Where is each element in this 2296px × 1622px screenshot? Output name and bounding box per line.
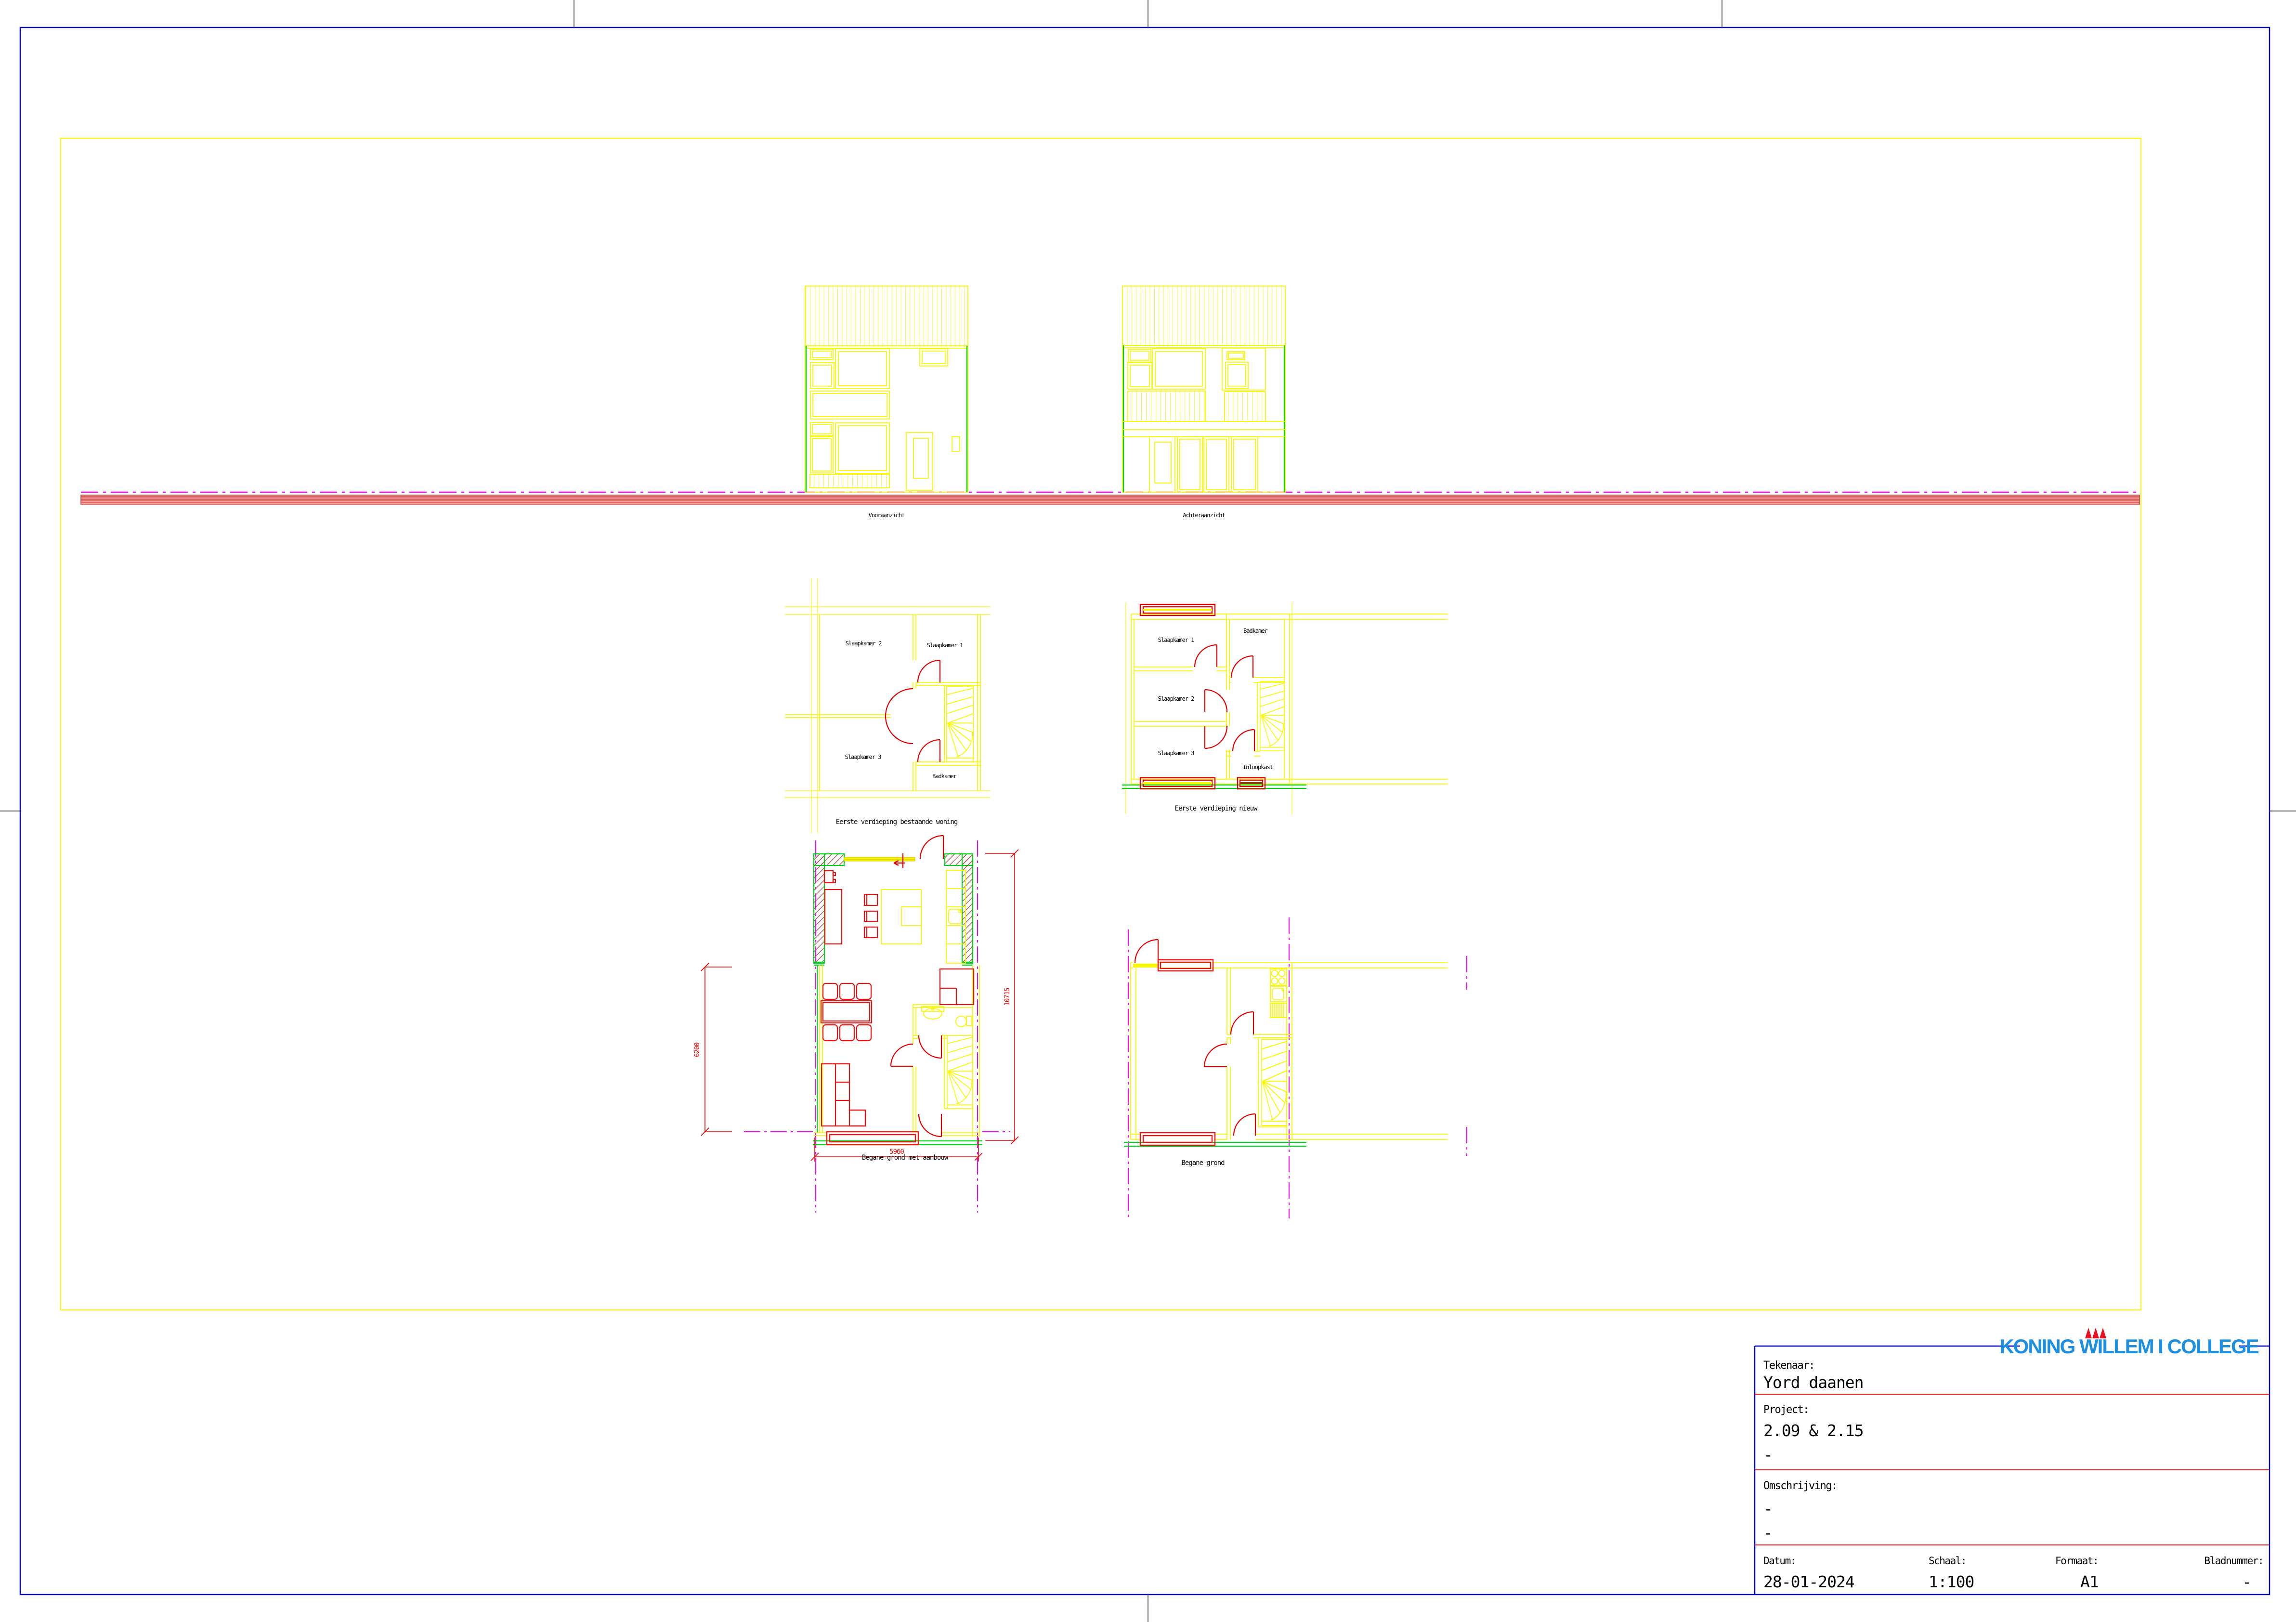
front-door [906,432,933,490]
balustrade-slats [1225,392,1265,421]
plan-first-new [1122,602,1448,814]
rear-elevation-label: Achteraanzicht [1183,512,1225,519]
kitchen [881,870,965,963]
plan-first-existing [785,578,991,833]
roof-hatch [805,286,968,346]
plan-caption: Eerste verdieping nieuw [1175,805,1258,812]
room-label: Slaapkamer 3 [1158,750,1194,757]
tekenaar-value: Yord daanen [1763,1373,1864,1392]
bladnummer-value: - [2242,1572,2251,1591]
stair [1260,681,1284,751]
datum-label: Datum: [1763,1555,1796,1567]
fold-marks [0,0,2296,1622]
door-swings [886,660,940,762]
louvre-slats [810,474,889,488]
stair [1262,1039,1287,1125]
omschrijving-line1: - [1763,1499,1773,1518]
logo: KONING WILLEM I COLLEGE [1999,1328,2258,1358]
rear-ground-glazing [1149,437,1258,492]
plan-ground-extension [701,836,1018,1213]
page-border [0,0,2296,1622]
project-note: - [1763,1445,1773,1464]
formaat-value: A1 [2080,1572,2099,1591]
windows [1140,960,1215,1145]
dimension-depth-total: 10715 [1004,988,1011,1006]
room-label: Slaapkamer 2 [1158,695,1194,702]
room-label: Badkamer [1243,628,1268,634]
room-label: Inloopkast [1243,764,1273,771]
front-elevation [805,286,968,492]
rear-windows [1128,348,1265,421]
formaat-label: Formaat: [2055,1555,2098,1567]
plan-caption: Eerste verdieping bestaande woning [836,818,958,826]
schaal-label: Schaal: [1929,1555,1966,1567]
front-windows [810,349,960,488]
drawing-frame [61,138,2141,1310]
schaal-value: 1:100 [1929,1572,1974,1591]
rear-elevation [1122,286,1285,492]
logo-text: KONING WILLEM I COLLEGE [1999,1335,2258,1358]
title-block: KONING WILLEM I COLLEGE Tekenaar: Yord d… [1755,1328,2270,1595]
omschrijving-label: Omschrijving: [1763,1480,1837,1492]
floor-bands [1122,421,1285,437]
datum-value: 28-01-2024 [1763,1572,1854,1591]
kitchen [1270,969,1287,1018]
ground-line [81,492,2139,504]
door-swings [891,836,943,1137]
balustrade-slats [1128,391,1205,421]
dimension-depth-existing: 6200 [693,1043,701,1057]
stair [947,1035,973,1109]
window [827,1132,918,1145]
plan-caption: Begane grond [1181,1159,1225,1167]
extension-window-band [844,857,915,861]
roof-hatch [1122,286,1285,345]
drawing-sheet: Vooraanzicht Achteraanz [0,0,2296,1622]
room-label: Slaapkamer 1 [1158,637,1194,643]
tekenaar-label: Tekenaar: [1763,1360,1814,1372]
room-label: Slaapkamer 2 [846,640,882,647]
plan-ground [1124,917,1467,1218]
room-label: Slaapkamer 1 [927,642,963,649]
plan-caption: Begane grond met aanbouw [862,1154,949,1162]
title-block-dividers [1755,1394,2270,1545]
project-label: Project: [1763,1404,1809,1416]
project-value: 2.09 & 2.15 [1763,1421,1864,1440]
wc-fixtures [922,1007,972,1027]
room-label: Slaapkamer 3 [845,754,881,760]
stair [947,686,973,762]
front-elevation-label: Vooraanzicht [869,512,905,519]
omschrijving-line2: - [1763,1523,1773,1542]
bladnummer-label: Bladnummer: [2204,1555,2263,1567]
room-label: Badkamer [932,773,957,780]
door-swings [1195,645,1254,751]
